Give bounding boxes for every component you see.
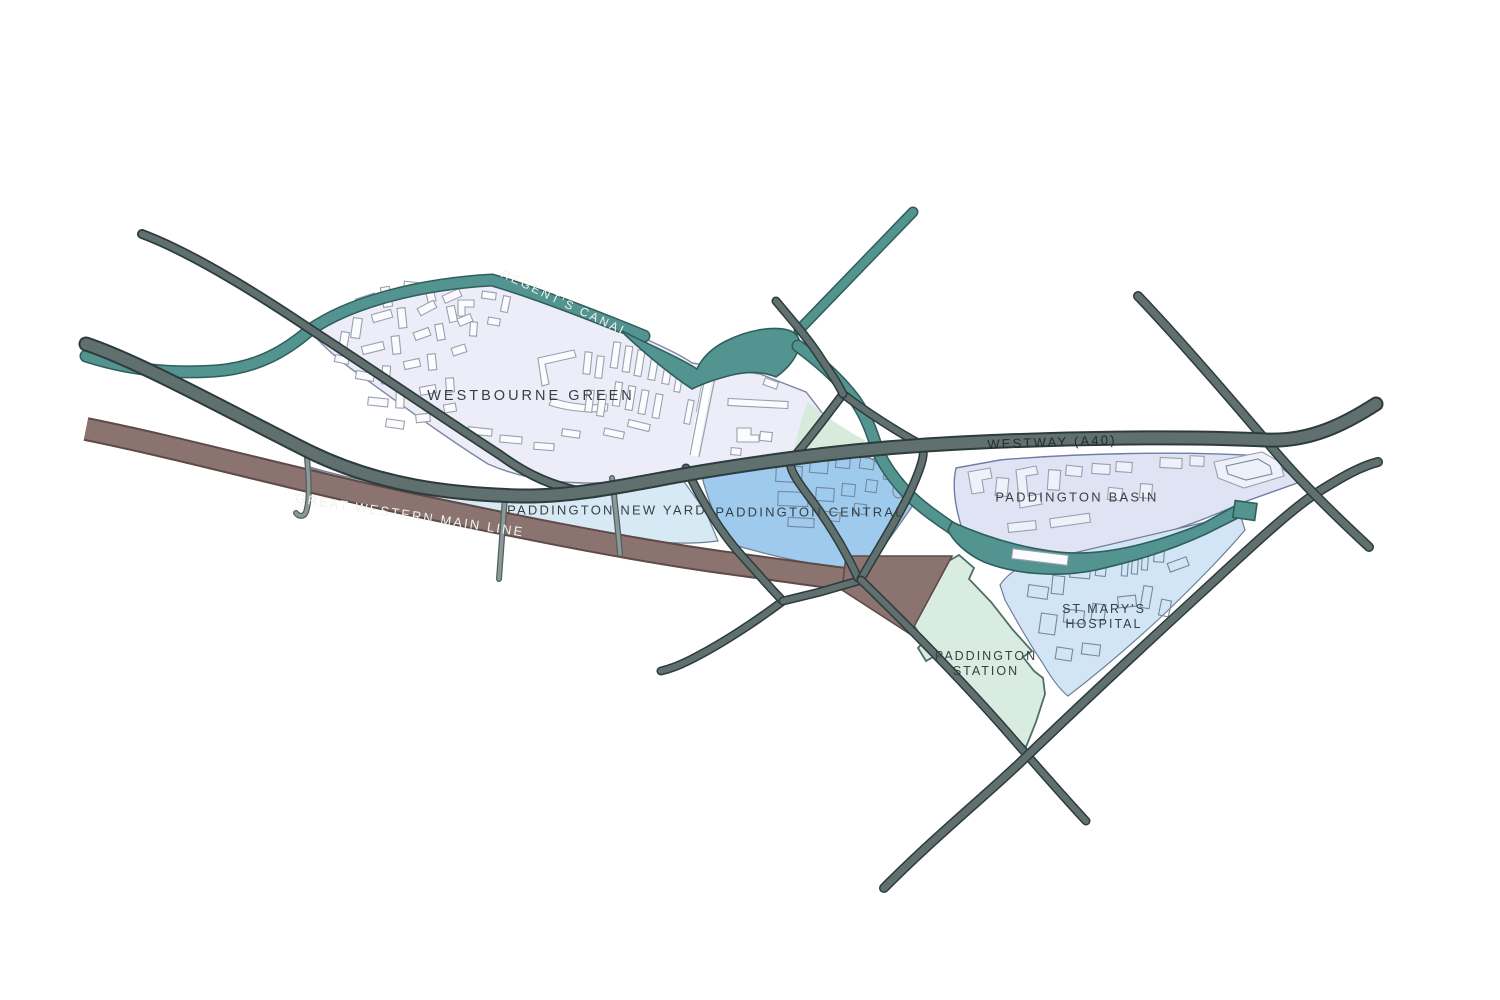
label-st-marys-line1: ST MARY'S xyxy=(1062,602,1146,617)
label-westbourne-green: WESTBOURNE GREEN xyxy=(427,388,635,404)
label-paddington-basin: PADDINGTON BASIN xyxy=(995,490,1158,505)
label-paddington-station: PADDINGTON STATION xyxy=(935,649,1037,679)
canal-dock xyxy=(1233,501,1257,521)
label-station-line1: PADDINGTON xyxy=(935,649,1037,664)
label-st-marys-line2: HOSPITAL xyxy=(1062,617,1146,632)
canal-branch-north xyxy=(799,212,913,330)
label-station-line2: STATION xyxy=(935,664,1037,679)
label-paddington-new-yard: PADDINGTON NEW YARD xyxy=(507,503,707,518)
paddington-map-drawing xyxy=(0,0,1500,1000)
label-paddington-central: PADDINGTON CENTRAL xyxy=(715,505,904,520)
label-st-marys-hospital: ST MARY'S HOSPITAL xyxy=(1062,602,1146,632)
map-canvas: REGENT'S CANAL WESTBOURNE GREEN WESTWAY … xyxy=(0,0,1500,1000)
